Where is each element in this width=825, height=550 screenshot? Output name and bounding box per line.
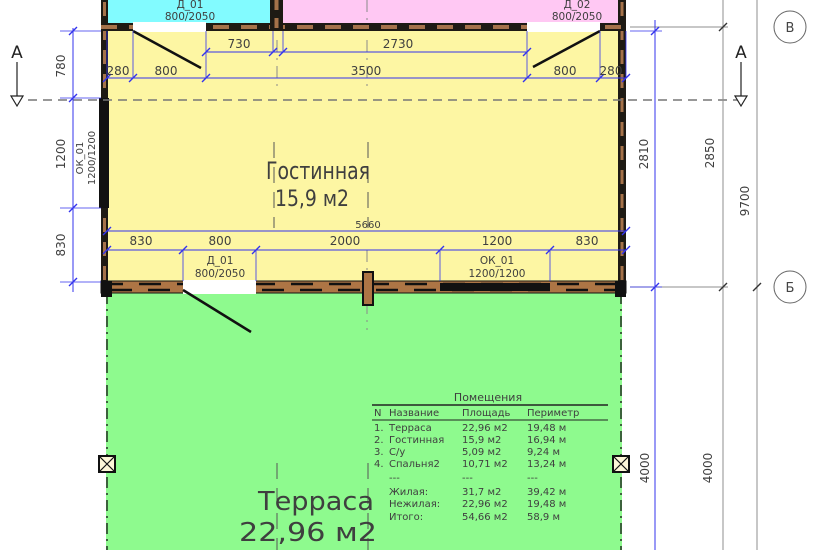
total-nonliving-perimeter: 19,48 м	[527, 499, 566, 510]
total-nonliving-label: Нежилая:	[389, 499, 440, 510]
grid-bubble-b-label: Б	[786, 281, 795, 296]
table-row: 3. С/у 5,09 м2 9,24 м	[374, 447, 560, 458]
dim-1200-b: 1200	[482, 234, 513, 248]
dimension-texts-left: 780 1200 830 ОК_01 1200/1200	[54, 55, 98, 257]
row2-num: 2.	[374, 435, 384, 446]
sep-2: ---	[462, 473, 473, 484]
total-overall-area: 54,66 м2	[462, 512, 508, 523]
dim-2850: 2850	[703, 138, 717, 169]
total-living-label: Жилая:	[389, 487, 428, 498]
row1-area: 22,96 м2	[462, 423, 508, 434]
dim-730: 730	[228, 37, 251, 51]
table-row: 1. Терраса 22,96 м2 19,48 м	[374, 423, 566, 434]
door-top-left-size: 800/2050	[165, 11, 215, 23]
section-marker-left-letter: А	[11, 43, 23, 63]
window-bottom-glyph	[440, 283, 550, 291]
terrace-post-left	[99, 456, 115, 472]
door-top-right-size: 800/2050	[552, 11, 602, 23]
row1-num: 1.	[374, 423, 384, 434]
dim-280-left: 280	[107, 64, 130, 78]
window-left-code: ОК_01	[75, 142, 86, 175]
window-left-size: 1200/1200	[87, 131, 98, 185]
section-arrow-left-icon	[11, 96, 23, 106]
door-bottom-code: Д_01	[207, 255, 234, 267]
row4-area: 10,71 м2	[462, 459, 508, 470]
grid-bubbles: В Б	[774, 11, 806, 303]
door-opening-top-right	[527, 22, 600, 32]
row2-name: Гостинная	[389, 435, 444, 446]
row3-name: С/у	[389, 447, 405, 458]
terrace-post-right	[613, 456, 629, 472]
row1-name: Терраса	[388, 423, 432, 434]
dim-5660: 5660	[355, 220, 380, 231]
row4-num: 4.	[374, 459, 384, 470]
section-marker-right: А	[735, 43, 747, 106]
total-overall-label: Итого:	[389, 512, 423, 523]
door-top-right-code: Д_02	[564, 0, 591, 11]
room-living-area: 15,9 м2	[275, 187, 349, 212]
sep-1: ---	[389, 473, 400, 484]
row4-name: Спальня2	[389, 459, 440, 470]
gray-dim-ticks	[719, 23, 761, 291]
dim-800-b: 800	[209, 234, 232, 248]
table-header-perimeter: Периметр	[527, 408, 579, 419]
window-bottom-size: 1200/1200	[469, 268, 526, 280]
dim-830-b1: 830	[130, 234, 153, 248]
table-header-area: Площадь	[462, 408, 510, 419]
dim-4000-outer: 4000	[701, 453, 715, 484]
row1-perimeter: 19,48 м	[527, 423, 566, 434]
table-totals: Жилая: 31,7 м2 39,42 м Нежилая: 22,96 м2…	[389, 487, 566, 523]
dim-9700: 9700	[738, 186, 752, 217]
section-arrow-right-icon	[735, 96, 747, 106]
floor-plan-drawing: А А В Б 730 2730 280 800 3500 800 280 56…	[0, 0, 825, 550]
window-left-glyph	[99, 98, 109, 208]
dimension-texts-right: 2810 2850 9700 4000 4000	[637, 138, 752, 484]
row2-area: 15,9 м2	[462, 435, 501, 446]
total-overall-perimeter: 58,9 м	[527, 512, 560, 523]
row2-perimeter: 16,94 м	[527, 435, 566, 446]
section-marker-right-letter: А	[735, 43, 747, 63]
table-header-n: N	[374, 408, 381, 419]
sep-3: ---	[527, 473, 538, 484]
row4-perimeter: 13,24 м	[527, 459, 566, 470]
grid-bubble-v-label: В	[786, 21, 795, 36]
rooms-table-title: Помещения	[454, 391, 522, 404]
dim-2810: 2810	[637, 139, 651, 170]
window-bottom-code: ОК_01	[480, 255, 514, 267]
dim-2730: 2730	[383, 37, 414, 51]
total-nonliving-area: 22,96 м2	[462, 499, 508, 510]
table-row: 2. Гостинная 15,9 м2 16,94 м	[374, 435, 566, 446]
row3-num: 3.	[374, 447, 384, 458]
table-header-name: Название	[389, 408, 439, 419]
dim-830-l: 830	[54, 234, 68, 257]
dim-4000-inner: 4000	[638, 453, 652, 484]
dim-800-left: 800	[155, 64, 178, 78]
total-living-area: 31,7 м2	[462, 487, 501, 498]
dim-800-right: 800	[554, 64, 577, 78]
post-center	[363, 272, 373, 305]
table-row: 4. Спальня2 10,71 м2 13,24 м	[374, 459, 566, 470]
door-top-left-code: Д_01	[177, 0, 204, 11]
room-living-name: Гостинная	[266, 157, 370, 185]
dim-780: 780	[54, 55, 68, 78]
row3-perimeter: 9,24 м	[527, 447, 560, 458]
row3-area: 5,09 м2	[462, 447, 501, 458]
room-terrace-area: 22,96 м2	[239, 518, 377, 548]
section-marker-left: А	[11, 43, 23, 106]
dim-1200-l: 1200	[54, 139, 68, 170]
dim-830-b2: 830	[576, 234, 599, 248]
total-living-perimeter: 39,42 м	[527, 487, 566, 498]
door-bottom-size: 800/2050	[195, 268, 245, 280]
door-opening-bottom	[183, 280, 256, 294]
dim-2000-b: 2000	[330, 234, 361, 248]
floor-plan-canvas: А А В Б 730 2730 280 800 3500 800 280 56…	[0, 0, 825, 550]
door-opening-top-left	[133, 22, 206, 32]
room-terrace-name: Терраса	[257, 487, 374, 517]
dim-3500: 3500	[351, 64, 382, 78]
dim-280-right: 280	[600, 64, 623, 78]
